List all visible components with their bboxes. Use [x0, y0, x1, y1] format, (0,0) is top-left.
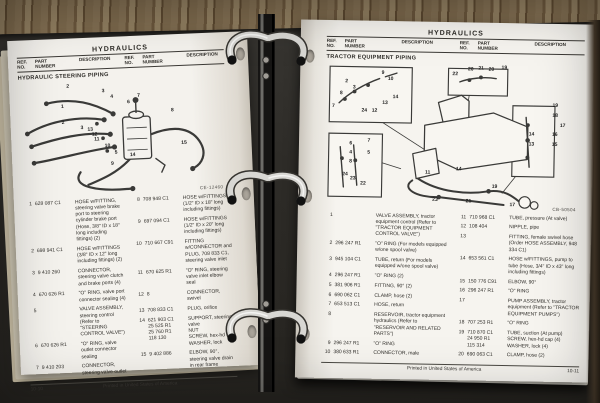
part-number: 945 104 C1: [335, 256, 372, 269]
part-number: 108 404: [469, 224, 506, 231]
ref-number: 17: [455, 297, 464, 316]
diagram-callout: 7: [332, 103, 335, 109]
part-number: 707 253 R1: [467, 320, 504, 327]
part-number: 150 776 C91: [468, 278, 505, 285]
part-description: HOSE w/FITTING, steering valve brake por…: [75, 197, 124, 243]
parts-column: 1 628 087 C1 HOSE w/FITTING, steering va…: [23, 197, 129, 382]
diagram-callout: 10: [388, 76, 394, 82]
parts-column: 11 710 968 C1 TUBE, pressure (At valve) …: [455, 214, 582, 364]
ref-number: 10: [321, 349, 330, 355]
ref-number: 11: [457, 214, 466, 220]
diagram-callout: 20: [489, 67, 495, 73]
page-number: 10-10: [31, 387, 43, 393]
part-description: "O" RING (2): [375, 273, 448, 281]
table-row: 10 380 633 R1 CONNECTOR, male: [321, 349, 446, 357]
part-description: "O" RING, steering valve inlet elbow sea…: [186, 265, 234, 286]
parts-table: 1 628 087 C1 HOSE w/FITTING, steering va…: [23, 193, 237, 382]
ref-number: 5: [322, 282, 331, 288]
part-description: HOSE w/FITTINGS (1/2" ID x 20" long incl…: [184, 215, 232, 236]
parts-column: 8 708 948 C1 HOSE w/FITTINGS (1/2" ID x …: [131, 193, 237, 378]
part-description: CONNECTOR, steering valve clutch and bra…: [78, 267, 126, 288]
part-description: HOSE w/FITTINGS, pump to tube (Hose, 3/4…: [508, 256, 581, 276]
binder-cover-edge: [586, 20, 600, 403]
table-header-group: REF. NO. PART NUMBER DESCRIPTION: [460, 40, 585, 53]
table-row: 1 VALVE ASSEMBLY, tractor equipment cont…: [323, 211, 448, 238]
column-header-ref: REF. NO.: [327, 38, 341, 49]
part-number: 710 870 C1 24 950 R1 115 314: [467, 329, 504, 348]
table-row: 1 628 087 C1 HOSE w/FITTING, steering va…: [23, 197, 124, 245]
diagram-callout: 23: [432, 197, 438, 203]
part-description: "O" RING (For models equipped w/one spoo…: [375, 241, 448, 255]
diagram-callout: 17: [509, 202, 515, 208]
part-description: CONNECTOR, swivel: [187, 288, 234, 302]
ref-number: 1: [323, 211, 332, 236]
diagram-callout: 2: [345, 78, 348, 84]
table-row: 10 710 667 C91 FITTING w/CONNECTOR and P…: [133, 237, 233, 266]
table-row: 2 296 247 R1 "O" RING (For models equipp…: [323, 240, 448, 255]
diagram-callout: 7: [137, 93, 140, 99]
diagram-callout: 1: [61, 104, 64, 110]
ref-number: 7: [322, 301, 331, 307]
ref-number: 13: [135, 307, 144, 314]
table-row: 3 9 410 260 CONNECTOR, steering valve cl…: [26, 267, 126, 290]
tractor-piping-illustration: [324, 61, 585, 213]
diagram-callout: 15: [181, 139, 187, 145]
photo-scene: HYDRAULICS REF. NO. PART NUMBER DESCRIPT…: [0, 0, 600, 403]
page-number: 10-11: [567, 369, 579, 374]
ref-number: 20: [455, 352, 464, 358]
part-description: "O" RING: [508, 288, 581, 296]
ref-number: 9: [132, 219, 142, 238]
steering-piping-diagram: CE-12460 23412367815131211105149: [18, 75, 230, 200]
diagram-callout: 14: [456, 166, 462, 172]
diagram-callout: 11: [425, 170, 430, 176]
part-description: "O" RING, valve outlet connector sealing: [81, 339, 129, 360]
ref-number: 8: [322, 311, 331, 336]
table-row: 7 653 513 C1 HOSE, return: [322, 301, 447, 309]
diagram-callout: 20: [468, 67, 474, 73]
punch-hole: [301, 328, 310, 341]
ref-number: 2: [25, 248, 35, 267]
part-number: 670 625 R1: [146, 268, 184, 288]
part-description: HOSE w/FITTINGS (1/2" ID x 18" long incl…: [183, 193, 231, 214]
column-header-desc: DESCRIPTION: [383, 39, 452, 51]
table-row: 6 670 626 R1 "O" RING, valve outlet conn…: [29, 339, 129, 362]
ref-number: 8: [131, 196, 141, 215]
part-number: [469, 233, 506, 252]
figure-code: CB-50504: [552, 206, 576, 211]
spine-rivets: [263, 57, 269, 323]
diagram-callout: 19: [552, 102, 558, 108]
page-footer: Printed in United States of America 10-1…: [321, 362, 579, 375]
diagram-callout: 14: [130, 152, 136, 158]
diagram-callout: 14: [393, 94, 399, 100]
diagram-callout: 10: [105, 143, 111, 149]
ref-number: 15: [137, 352, 147, 371]
column-header-ref: REF. NO.: [460, 40, 474, 51]
diagram-callout: 13: [529, 142, 535, 148]
column-header-desc: DESCRIPTION: [180, 51, 224, 63]
table-row: 15 150 776 C91 ELBOW, 90°: [456, 278, 581, 286]
table-row: 8 708 948 C1 HOSE w/FITTINGS (1/2" ID x …: [131, 193, 231, 216]
diagram-callout: 6: [127, 99, 130, 105]
ref-number: 19: [455, 329, 464, 348]
table-row: 16 296 247 R1 "O" RING: [456, 288, 581, 296]
part-number: 296 247 R1: [468, 288, 505, 295]
column-header-part: PART NUMBER: [35, 58, 69, 70]
part-description: "O" RING: [373, 340, 446, 348]
table-row: 12 108 404 NIPPLE, pipe: [457, 224, 582, 232]
part-description: PLUG, orifice: [187, 304, 234, 312]
part-description: CONNECTOR, male: [373, 350, 446, 358]
table-row: 8 RESERVOIR, tractor equipment hydraulic…: [322, 311, 447, 338]
table-row: 11 710 968 C1 TUBE, pressure (At valve): [457, 214, 582, 222]
diagram-callout: 3: [80, 125, 83, 131]
column-header-part: PART NUMBER: [345, 38, 379, 49]
diagram-callout: 6: [349, 140, 352, 146]
diagram-callout: 21: [466, 199, 472, 205]
diagram-callout: 3: [353, 84, 356, 90]
part-number: 621 903 C1 25 525 R1 25 760 R1 118 130: [148, 316, 186, 349]
diagram-callout: 9: [382, 70, 385, 76]
table-row: 13 708 833 C1 PLUG, orifice: [135, 304, 234, 314]
table-row: 6 690 062 C1 CLAMP, hose (2): [322, 291, 447, 299]
table-row: 17 PUMP ASSEMBLY, tractor equipment (Ref…: [455, 297, 580, 318]
ref-number: 15: [456, 278, 465, 284]
ref-number: 1: [23, 201, 34, 245]
table-row: 12 8 CONNECTOR, swivel: [135, 288, 234, 305]
ref-number: 6: [322, 291, 331, 297]
part-description: RESERVOIR, tractor equipment hydraulics …: [374, 312, 447, 338]
diagram-callout: 24: [342, 171, 348, 177]
punch-hole: [241, 187, 251, 200]
part-number: 690 062 C1: [334, 292, 371, 299]
part-number: 710 968 C1: [469, 214, 506, 221]
diagram-callout: 8: [340, 90, 343, 96]
diagram-callout: 4: [349, 149, 352, 155]
spine-bar: [258, 14, 275, 392]
part-description: SUPPORT, steering valve NUT SCREW, hex-h…: [188, 313, 236, 346]
column-header-part: PART NUMBER: [142, 53, 176, 65]
part-number: 296 247 R1: [333, 340, 370, 347]
table-row: 14 653 561 C1 HOSE w/FITTINGS, pump to t…: [456, 256, 581, 277]
diagram-callout: 8: [349, 158, 352, 164]
part-number: 708 833 C1: [147, 306, 184, 314]
diagram-callout: 19: [502, 64, 508, 70]
printed-note: Printed in United States of America: [321, 365, 567, 374]
part-description: TUBE, pressure (At valve): [509, 215, 582, 223]
part-number: 9 402 886: [149, 350, 187, 370]
ref-number: 16: [456, 288, 465, 294]
diagram-callout: 5: [115, 149, 118, 155]
table-row: 11 670 625 R1 "O" RING, steering valve i…: [134, 265, 234, 288]
table-row: 4 296 247 R1 "O" RING (2): [323, 272, 448, 280]
figure-code: CE-12460: [200, 184, 224, 190]
ref-number: 5: [27, 308, 37, 340]
ref-number: 12: [457, 224, 466, 230]
ref-number: 11: [134, 269, 144, 288]
ref-number: 7: [30, 365, 40, 378]
ref-number: 10: [133, 241, 143, 266]
part-number: 670 626 R1: [41, 342, 79, 362]
diagram-callout: 4: [110, 94, 113, 100]
right-page: HYDRAULICS REF. NO. PART NUMBER DESCRIPT…: [295, 19, 594, 382]
part-number: 296 247 R1: [335, 240, 372, 253]
diagram-callout: 16: [552, 132, 558, 138]
part-number: 9 410 260: [38, 269, 76, 289]
table-row: 3 945 104 C1 TUBE, return (For models eq…: [323, 256, 448, 271]
part-description: ELBOW, 90°, steering valve drain in rear…: [189, 348, 237, 369]
table-row: 20 690 063 C1 CLAMP, hose (2): [455, 352, 580, 360]
part-number: [467, 297, 504, 316]
part-number: 698 941 C1: [37, 246, 75, 266]
ref-number: 4: [323, 272, 332, 278]
part-description: HOSE, return: [374, 302, 447, 310]
table-row: 13 FITTING, female swivel hose (Order HO…: [457, 233, 582, 254]
part-number: [335, 212, 372, 238]
part-number: 670 626 R1: [39, 291, 76, 305]
table-row: 19 710 870 C1 24 950 R1 115 314 TUBE, su…: [455, 329, 580, 350]
part-number: 8: [147, 290, 184, 304]
diagram-callout: 23: [350, 176, 356, 182]
part-number: 381 906 R1: [334, 282, 371, 289]
table-row: 9 296 247 R1 "O" RING: [321, 339, 446, 347]
diagram-callout: 22: [452, 71, 458, 77]
ref-number: 3: [26, 270, 36, 289]
column-header-ref: REF. NO.: [17, 59, 31, 70]
part-number: 708 948 C1: [143, 195, 181, 215]
part-number: 690 063 C1: [467, 352, 504, 359]
part-description: VALVE ASSEMBLY, steering control (Refer …: [79, 305, 127, 338]
table-row: 9 697 094 C1 HOSE w/FITTINGS (1/2" ID x …: [132, 215, 232, 238]
table-row: 5 381 906 R1 FITTING, 90° (2): [322, 282, 447, 290]
diagram-callout: 2: [62, 120, 65, 126]
part-description: ELBOW, 90°: [508, 279, 581, 287]
ref-number: 14: [136, 317, 146, 349]
part-number: 9 410 203: [42, 364, 79, 378]
part-description: TUBE, return (For models equipped w/one …: [375, 257, 448, 271]
diagram-callout: 22: [360, 180, 366, 186]
diagram-callout: 3: [102, 88, 105, 94]
table-row: 14 621 903 C1 25 525 R1 25 760 R1 118 13…: [136, 313, 236, 348]
parts-table: 1 VALVE ASSEMBLY, tractor equipment cont…: [321, 211, 582, 363]
ref-number: 4: [27, 293, 37, 306]
part-number: 697 094 C1: [144, 217, 182, 237]
steering-piping-illustration: [18, 75, 230, 200]
part-description: PUMP ASSEMBLY, tractor equipment (Refer …: [507, 298, 580, 318]
part-description: HOSE w/FITTINGS (3/8" ID x 12" long incl…: [77, 244, 125, 265]
part-description: FITTING w/CONNECTOR and PLUG, 708 833 C1…: [185, 237, 233, 264]
part-description: TUBE, suction (At pump) SCREW, hex-hd ca…: [507, 330, 580, 350]
diagram-callout: 18: [552, 113, 558, 119]
diagram-callout: 17: [560, 123, 566, 129]
part-description: NIPPLE, pipe: [509, 224, 582, 232]
diagram-callout: 21: [478, 66, 484, 72]
part-description: FITTING, 90° (2): [374, 283, 447, 291]
table-row: 15 9 402 886 ELBOW, 90°, steering valve …: [137, 348, 237, 371]
diagram-callout: 2: [66, 84, 69, 90]
part-number: 296 247 R1: [335, 272, 372, 279]
ref-number: 6: [29, 343, 39, 362]
part-number: 710 667 C91: [145, 239, 183, 266]
diagram-callout: 19: [492, 184, 498, 190]
part-description: VALVE ASSEMBLY, tractor equipment contro…: [375, 212, 448, 238]
part-description: "O" RING: [507, 320, 580, 328]
diagram-callout: 11: [94, 136, 100, 142]
punch-hole: [247, 325, 257, 338]
diagram-callout: 15: [552, 142, 558, 148]
part-number: 653 513 C1: [334, 301, 371, 308]
part-number: 380 633 R1: [333, 349, 370, 356]
part-description: FITTING, female swivel hose (Order HOSE …: [509, 234, 582, 254]
punch-hole: [305, 50, 314, 63]
part-number: [334, 311, 371, 337]
diagram-callout: 13: [382, 99, 388, 105]
diagram-callout: 24: [361, 108, 367, 114]
punch-hole: [236, 47, 246, 60]
part-number: [39, 307, 77, 340]
ref-number: 9: [321, 339, 330, 345]
part-description: CLAMP, hose (2): [374, 292, 447, 300]
ref-number: 12: [135, 291, 145, 304]
part-description: "O" RING, valve port connector sealing (…: [79, 289, 126, 303]
ref-number: 3: [323, 256, 332, 269]
column-header-part: PART NUMBER: [478, 41, 512, 52]
part-number: 628 087 C1: [35, 199, 74, 244]
ref-number: 2: [323, 240, 332, 253]
printed-note: Printed in United States of America: [43, 379, 238, 392]
diagram-callout: 5: [367, 149, 370, 155]
part-number: 653 561 C1: [468, 256, 505, 275]
diagram-callout: 14: [529, 132, 535, 138]
diagram-callout: 9: [111, 161, 114, 167]
table-row: 18 707 253 R1 "O" RING: [455, 320, 580, 328]
ref-number: 18: [455, 320, 464, 326]
diagram-callout: 7: [367, 138, 370, 144]
table-row: 2 698 941 C1 HOSE w/FITTINGS (3/8" ID x …: [25, 244, 125, 267]
ref-number: 14: [456, 256, 465, 275]
column-header-desc: DESCRIPTION: [73, 56, 117, 68]
ref-number: 13: [457, 233, 466, 252]
part-description: CLAMP, hose (2): [507, 352, 580, 360]
table-row: 7 9 410 203 CONNECTOR, steering valve ou…: [30, 362, 129, 379]
left-page: HYDRAULICS REF. NO. PART NUMBER DESCRIPT…: [7, 31, 261, 375]
punch-hole: [303, 190, 312, 203]
diagram-callout: 8: [171, 107, 174, 113]
parts-column: 1 VALVE ASSEMBLY, tractor equipment cont…: [321, 211, 448, 361]
tractor-piping-diagram: CB-50504 9102387141324122220212019191817…: [324, 61, 585, 213]
table-row: 5 VALVE ASSEMBLY, steering control (Refe…: [27, 305, 127, 340]
diagram-callout: 12: [372, 108, 378, 114]
column-header-ref: REF. NO.: [124, 55, 138, 66]
table-row: 4 670 626 R1 "O" RING, valve port connec…: [27, 289, 126, 306]
column-header-desc: DESCRIPTION: [516, 41, 585, 53]
part-description: CONNECTOR, steering valve outlet: [82, 362, 129, 376]
table-header-group: REF. NO. PART NUMBER DESCRIPTION: [327, 38, 452, 51]
